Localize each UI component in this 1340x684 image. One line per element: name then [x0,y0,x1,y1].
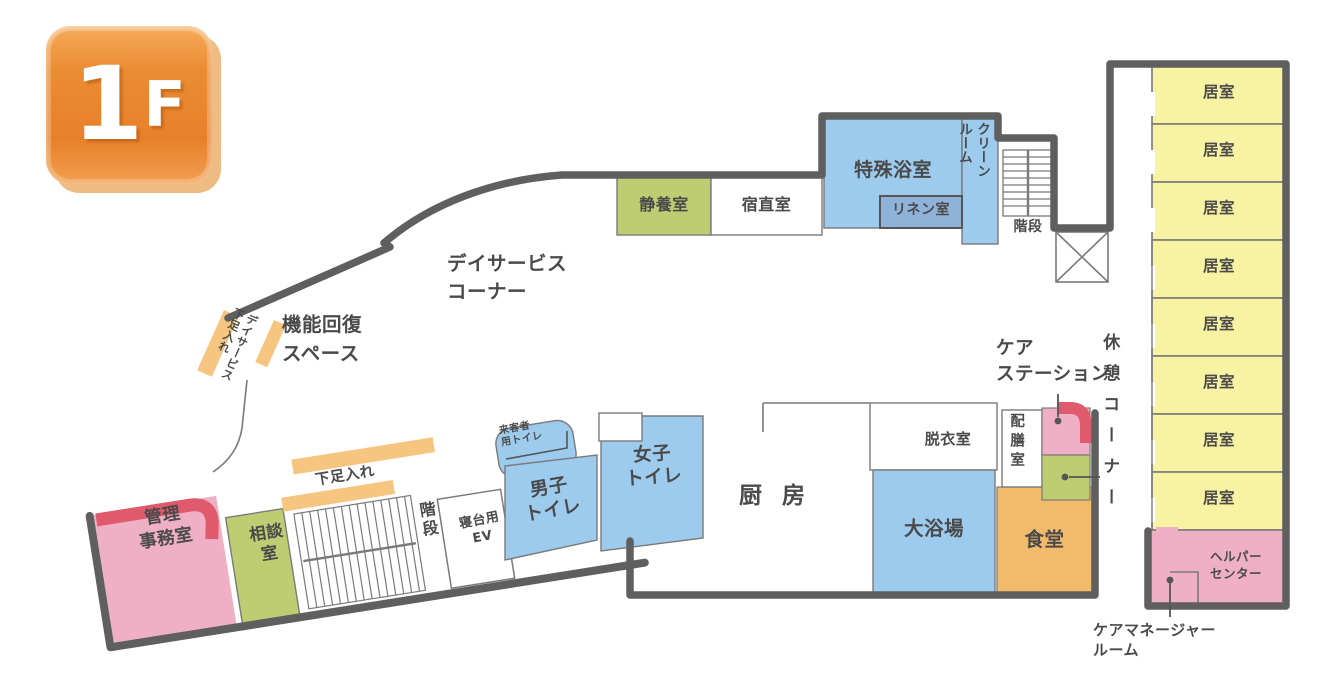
helper-door-gap [1156,527,1178,533]
label-rest-corner: 休憩コーナー [1098,333,1119,588]
label-kyoshitsu-8: 居室 [1152,489,1286,508]
label-rehab-space: 機能回復 スペース [282,310,362,368]
label-large-bath: 大浴場 [873,517,995,541]
label-special-bath: 特殊浴室 [824,159,962,183]
resident-rooms-column [1149,66,1286,530]
label-linen: リネン室 [880,202,962,220]
label-kitchen: 厨 房 [705,482,845,511]
floor-plan-1f: 1F 居室 居室 居室 居室 居室 居室 居室 居室 特殊浴室 リネン室 クリー… [0,0,1340,684]
label-kyoshitsu-6: 居室 [1152,373,1286,392]
label-kyoshitsu-5: 居室 [1152,315,1286,334]
label-helper-center: ヘルパー センター [1196,548,1276,582]
label-kyoshitsu-3: 居室 [1152,199,1286,218]
label-kyoshitsu-7: 居室 [1152,431,1286,450]
label-pantry: 配膳室 [1007,413,1025,493]
floor-suffix: F [143,74,185,136]
floor-badge: 1F [46,26,212,184]
label-night-duty: 宿直室 [711,195,822,215]
label-kyoshitsu-4: 居室 [1152,257,1286,276]
label-stairs-top: 階段 [1000,219,1056,237]
label-dressing: 脱衣室 [898,430,998,449]
label-womens-toilet: 女子 トイレ [602,440,705,493]
stairs-top [1003,150,1053,216]
label-day-service-corner: デイサービス コーナー [447,250,567,306]
label-dining: 食堂 [997,528,1092,552]
label-kyoshitsu-2: 居室 [1152,141,1286,160]
floor-number: 1 [72,54,143,156]
label-care-manager: ケアマネージャー ルーム [1093,620,1216,660]
label-quiet-room: 静養室 [617,195,711,215]
label-kyoshitsu-1: 居室 [1152,83,1286,102]
womens-toilet-notch [599,413,642,441]
label-clean-room: クリーン ルーム [955,122,991,247]
shaft-x-box [1056,232,1108,282]
kitchen-interior-walls [763,403,870,432]
label-care-station: ケア ステーション [996,336,1110,388]
stairs-bottom [294,495,426,608]
